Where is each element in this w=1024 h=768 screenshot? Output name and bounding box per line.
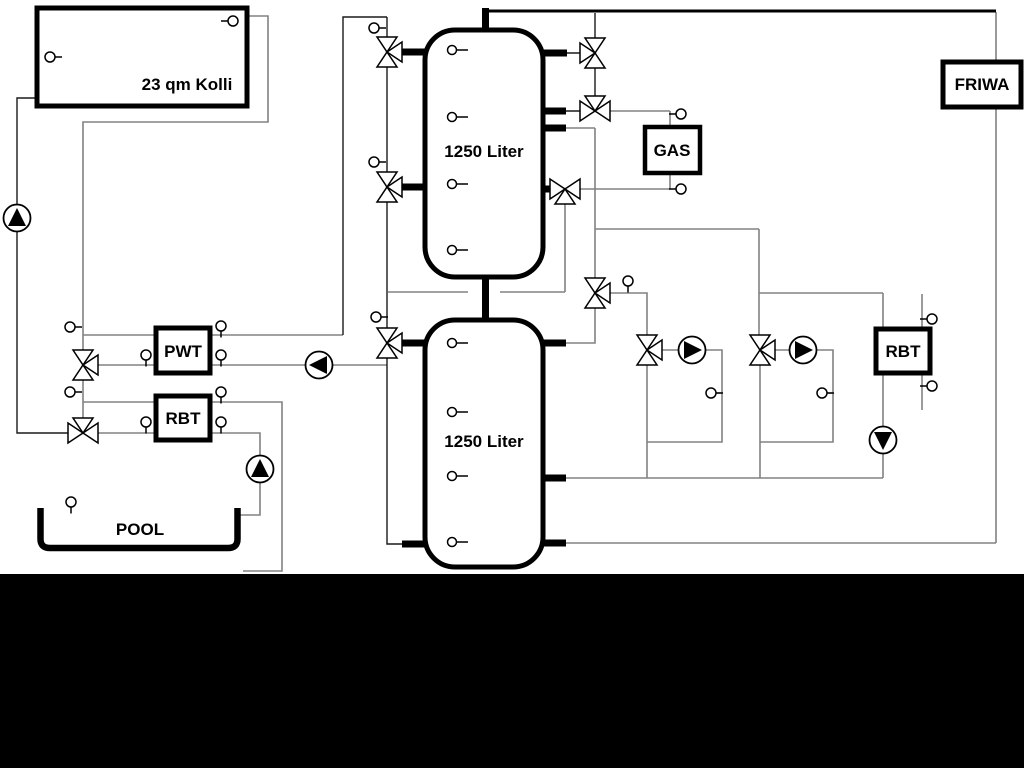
gas-boiler-label: GAS [654, 141, 691, 160]
letterbox-bar [0, 574, 1024, 768]
schematic-page: 23 qm Kolli 1250 Liter 1250 Liter GAS FR… [0, 0, 1024, 768]
buffer-tank-1-label: 1250 Liter [444, 142, 524, 161]
heating-pump-2-icon [790, 337, 817, 364]
friwa-label: FRIWA [955, 75, 1010, 94]
collector-label: 23 qm Kolli [142, 75, 233, 94]
heating-pump-1-icon [679, 337, 706, 364]
rbt-heating-pump-icon [870, 427, 897, 454]
pool-label: POOL [116, 520, 164, 539]
pool-pump-icon [247, 456, 274, 483]
rbt-heating-label: RBT [886, 342, 922, 361]
charge-pump-icon [306, 352, 333, 379]
pwt-label: PWT [164, 342, 202, 361]
buffer-tank-2-label: 1250 Liter [444, 432, 524, 451]
hydraulic-schematic: 23 qm Kolli 1250 Liter 1250 Liter GAS FR… [0, 0, 1024, 768]
solar-pump-icon [4, 205, 31, 232]
rbt-pool-label: RBT [166, 409, 202, 428]
